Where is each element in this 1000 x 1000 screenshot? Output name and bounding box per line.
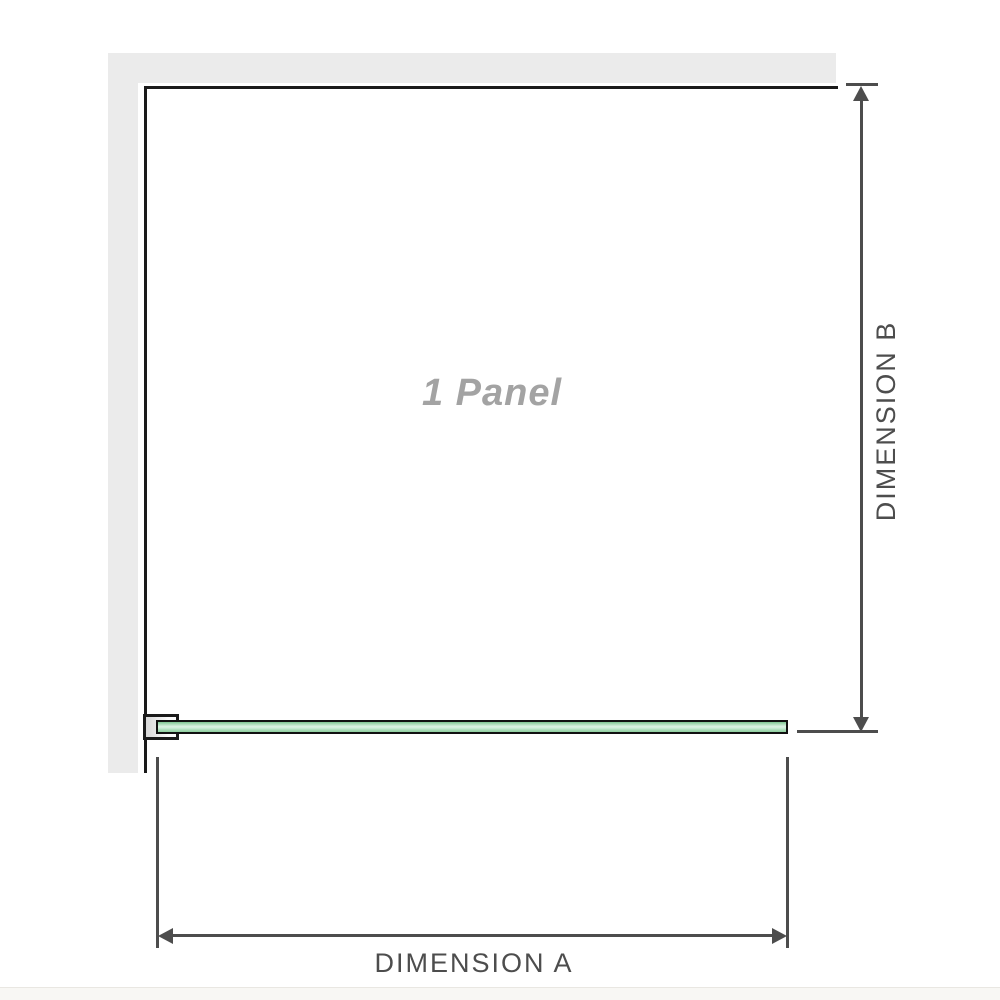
glass-panel	[156, 720, 788, 734]
panel-count-label: 1 Panel	[146, 372, 838, 415]
dimension-b-line	[860, 98, 863, 720]
arrow-right-icon	[772, 928, 787, 944]
panel-area-top-edge	[144, 86, 838, 89]
shower-screen-dimension-diagram: 1 Panel DIMENSION B DIMENSION A	[0, 0, 1000, 1000]
dimension-a-right-extension-line	[786, 757, 789, 948]
dimension-a-label: DIMENSION A	[158, 948, 790, 979]
wall-top-strip	[108, 53, 836, 83]
panel-area-left-edge	[144, 86, 147, 773]
arrow-down-icon	[853, 717, 869, 732]
wall-left-strip	[108, 53, 138, 773]
arrow-up-icon	[853, 86, 869, 101]
arrow-left-icon	[158, 928, 173, 944]
dimension-a-line	[170, 934, 775, 937]
page-bottom-edge	[0, 987, 1000, 1000]
dimension-b-label: DIMENSION B	[871, 301, 901, 541]
dimension-a-left-extension-line	[156, 757, 159, 948]
